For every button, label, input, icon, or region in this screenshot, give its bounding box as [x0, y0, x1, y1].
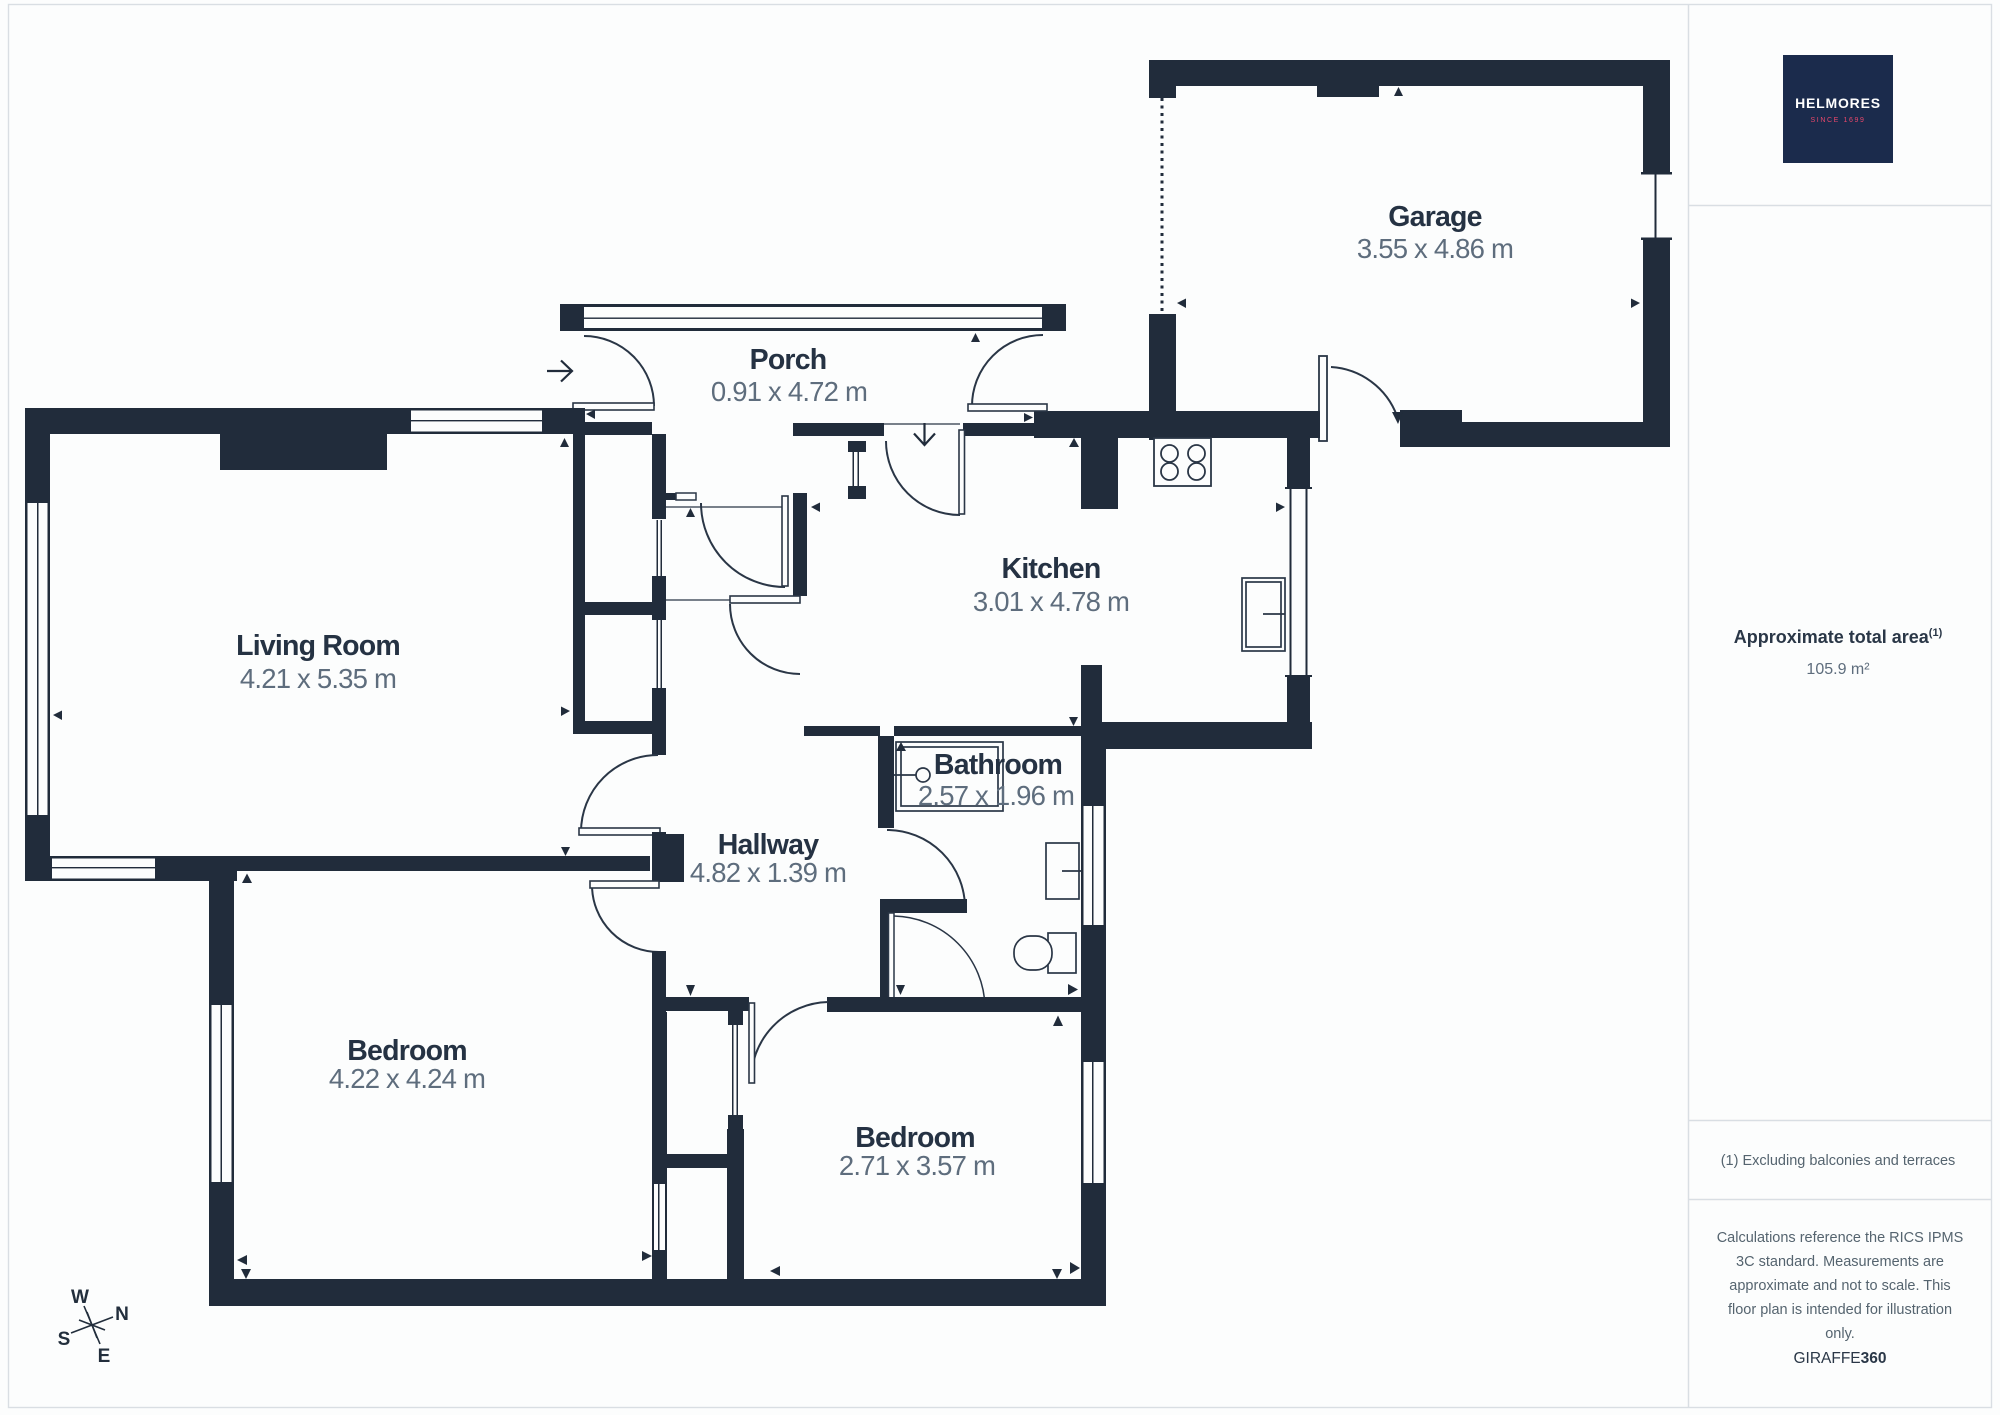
svg-text:Living Room: Living Room	[236, 630, 400, 662]
svg-text:3C standard. Measurements are: 3C standard. Measurements are	[1736, 1254, 1944, 1270]
svg-text:Kitchen: Kitchen	[1002, 553, 1101, 585]
svg-text:3.55 x 4.86 m: 3.55 x 4.86 m	[1357, 233, 1513, 264]
svg-text:Bathroom: Bathroom	[934, 749, 1062, 781]
svg-text:S: S	[58, 1329, 71, 1350]
svg-text:(1) Excluding balconies and te: (1) Excluding balconies and terraces	[1721, 1153, 1956, 1169]
svg-text:Porch: Porch	[750, 344, 827, 376]
svg-text:Garage: Garage	[1388, 201, 1481, 233]
svg-text:E: E	[98, 1346, 111, 1367]
svg-text:2.71 x 3.57 m: 2.71 x 3.57 m	[839, 1150, 995, 1181]
svg-text:N: N	[115, 1304, 129, 1325]
svg-text:HELMORES: HELMORES	[1795, 95, 1881, 111]
svg-text:105.9 m²: 105.9 m²	[1806, 661, 1870, 678]
svg-text:4.82 x 1.39 m: 4.82 x 1.39 m	[690, 857, 846, 888]
svg-text:SINCE 1699: SINCE 1699	[1811, 117, 1866, 124]
svg-text:W: W	[71, 1287, 89, 1308]
svg-text:4.22 x 4.24 m: 4.22 x 4.24 m	[329, 1063, 485, 1094]
svg-text:2.57 x 1.96 m: 2.57 x 1.96 m	[918, 780, 1074, 811]
svg-text:4.21 x 5.35 m: 4.21 x 5.35 m	[240, 663, 396, 694]
svg-text:Approximate total area(1): Approximate total area(1)	[1734, 627, 1943, 647]
svg-text:Calculations reference the RIC: Calculations reference the RICS IPMS	[1717, 1230, 1964, 1246]
svg-text:3.01 x 4.78 m: 3.01 x 4.78 m	[973, 586, 1129, 617]
svg-text:floor plan is intended for ill: floor plan is intended for illustration	[1728, 1302, 1952, 1318]
svg-text:only.: only.	[1825, 1326, 1855, 1342]
svg-text:GIRAFFE360: GIRAFFE360	[1793, 1350, 1886, 1367]
svg-text:0.91 x 4.72 m: 0.91 x 4.72 m	[711, 376, 867, 407]
svg-text:approximate and not to scale.: approximate and not to scale. This	[1729, 1278, 1950, 1294]
